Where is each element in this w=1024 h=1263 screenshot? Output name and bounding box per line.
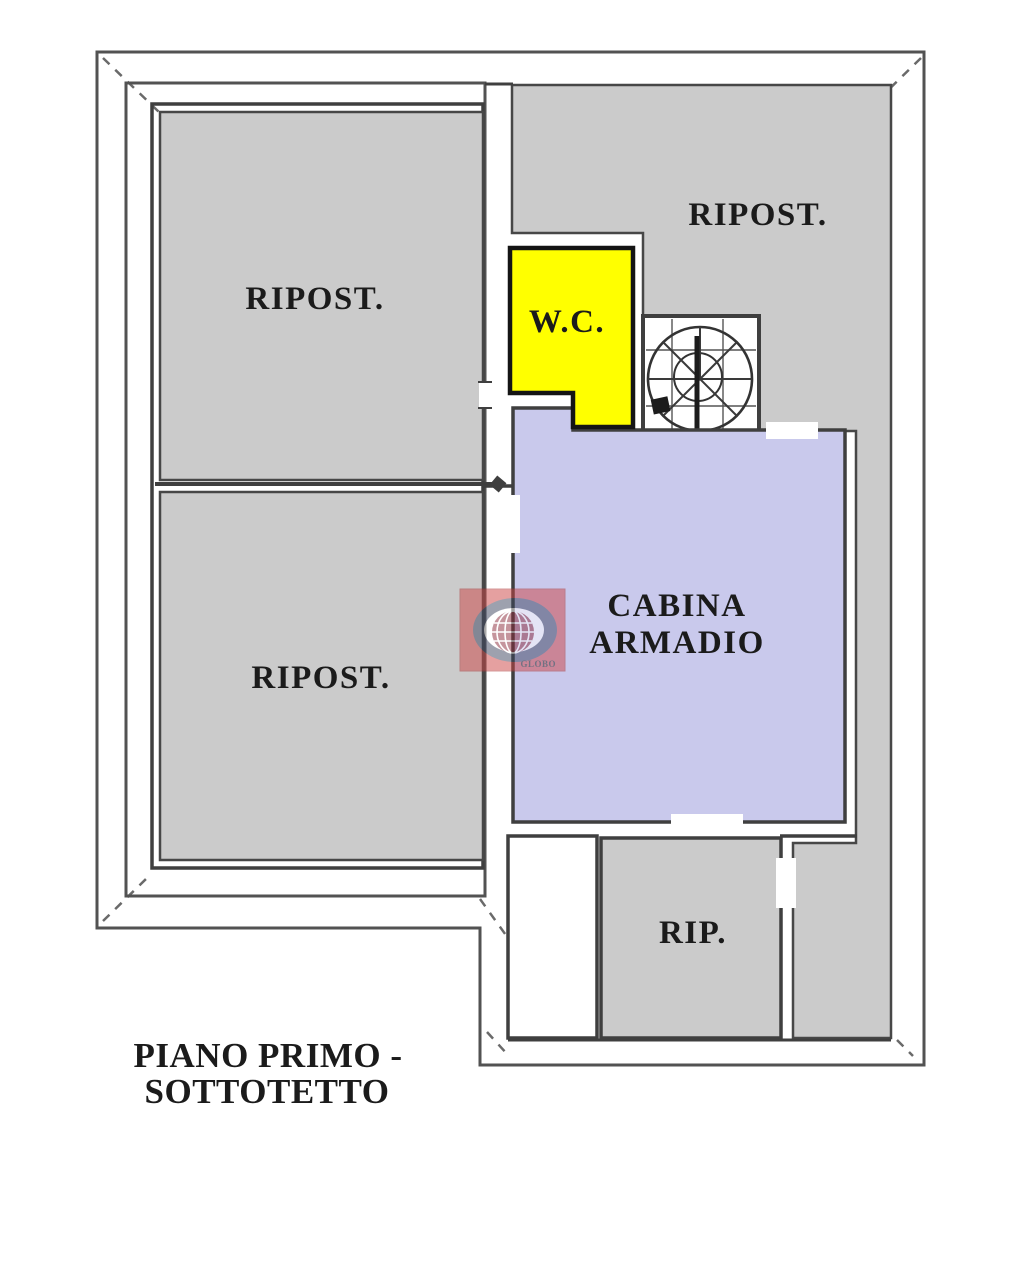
door-gap-rip-right: [776, 858, 796, 908]
door-gap-cabina-bottom: [671, 814, 743, 830]
spiral-staircase: [643, 316, 759, 446]
label-ripost-top-left: RIPOST.: [245, 281, 384, 317]
floor-plan-page: GLOBO RIPOST. RIPOST. RIPOST. W.C. CABIN…: [0, 0, 1024, 1263]
door-gap-cabina-top: [766, 422, 818, 439]
room-bottom-white: [508, 836, 597, 1038]
label-rip: RIP.: [659, 915, 727, 951]
label-ripost-top-right: RIPOST.: [688, 197, 827, 233]
floor-caption-line2: SOTTOTETTO: [145, 1072, 390, 1111]
door-gap-cabina-left: [505, 495, 520, 553]
label-ripost-bottom-left: RIPOST.: [251, 660, 390, 696]
floor-caption-line1: PIANO PRIMO -: [134, 1036, 403, 1075]
agency-watermark: GLOBO: [460, 589, 565, 671]
floor-plan-drawing: GLOBO RIPOST. RIPOST. RIPOST. W.C. CABIN…: [0, 0, 1024, 1263]
label-cabina-line2: ARMADIO: [589, 625, 764, 661]
label-cabina-line1: CABINA: [607, 588, 746, 624]
dash-bottom-right-icon: [897, 1040, 913, 1056]
watermark-text: GLOBO: [520, 659, 556, 669]
label-wc: W.C.: [529, 304, 605, 340]
divider-junction-block: [490, 476, 507, 493]
door-gap-left-wing: [479, 382, 491, 408]
dash-step-lower-icon: [487, 1032, 508, 1055]
floor-caption: PIANO PRIMO - SOTTOTETTO: [134, 1036, 403, 1111]
